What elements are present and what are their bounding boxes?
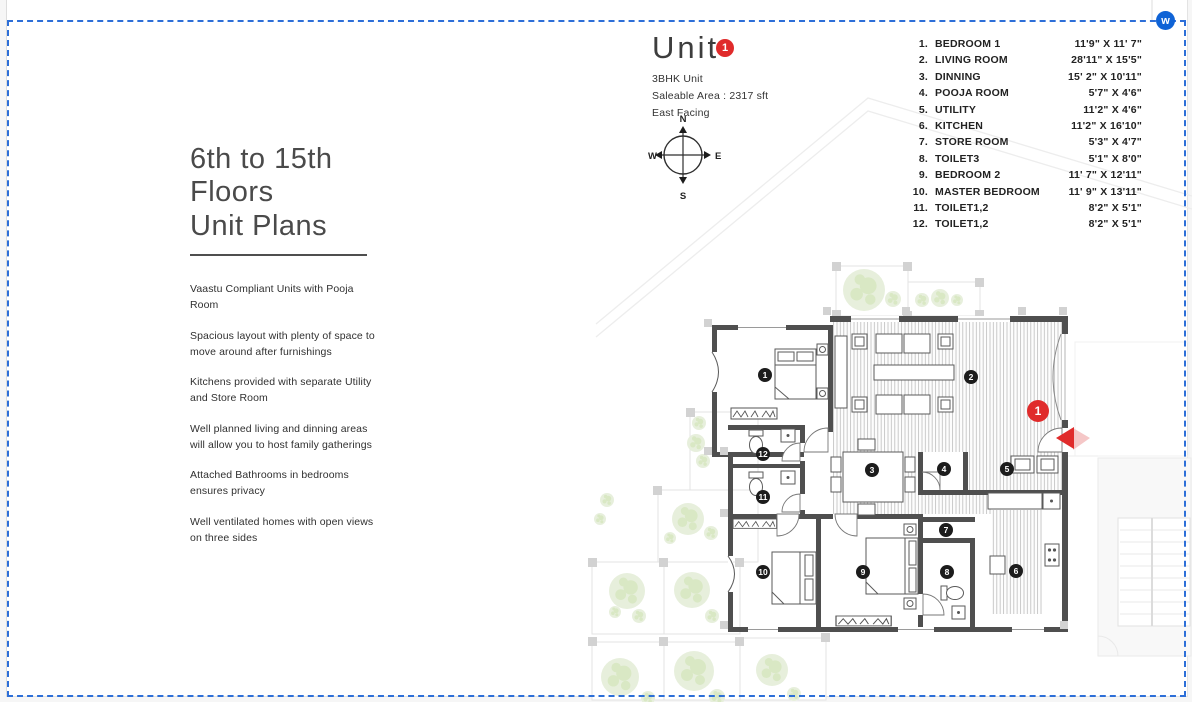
entry-unit-badge: 1 bbox=[1035, 404, 1042, 418]
compass-e-label: E bbox=[715, 151, 721, 162]
marker-master-bedroom: 10 bbox=[758, 567, 768, 577]
legend-row: 9.BEDROOM 211' 7" X 12'11" bbox=[912, 167, 1142, 183]
compass-s-label: S bbox=[680, 191, 686, 202]
legend-row: 2.LIVING ROOM28'11" X 15'5" bbox=[912, 52, 1142, 68]
unit-number-badge: 1 bbox=[716, 39, 734, 57]
legend-row: 8.TOILET35'1" X 8'0" bbox=[912, 151, 1142, 167]
feature-item: Attached Bathrooms in bedrooms ensures p… bbox=[190, 467, 376, 500]
unit-area: Saleable Area : 2317 sft bbox=[652, 88, 768, 105]
unit-type: 3BHK Unit bbox=[652, 71, 768, 88]
feature-item: Well ventilated homes with open views on… bbox=[190, 514, 376, 547]
marker-toilet3: 8 bbox=[945, 567, 950, 577]
feature-item: Vaastu Compliant Units with Pooja Room bbox=[190, 281, 376, 314]
marker-bedroom2: 9 bbox=[861, 567, 866, 577]
page-title: 6th to 15th Floors Unit Plans bbox=[190, 143, 402, 243]
marker-toilet12: 12 bbox=[758, 449, 768, 459]
page-title-line1: 6th to 15th Floors bbox=[190, 143, 402, 210]
brochure-page: 6th to 15th Floors Unit Plans Vaastu Com… bbox=[0, 0, 1192, 702]
marker-toilet11: 11 bbox=[759, 492, 768, 502]
compass-w-label: W bbox=[648, 151, 657, 162]
marker-bedroom1: 1 bbox=[763, 370, 768, 380]
feature-item: Spacious layout with plenty of space to … bbox=[190, 328, 376, 361]
title-underline bbox=[190, 254, 367, 256]
adjacent-unit-outline bbox=[1068, 342, 1191, 656]
marker-store: 7 bbox=[944, 525, 949, 535]
marker-utility: 5 bbox=[1005, 464, 1010, 474]
unit-header: Unit 1 3BHK Unit Saleable Area : 2317 sf… bbox=[652, 30, 768, 122]
compass-south-arrow bbox=[679, 177, 687, 184]
entry-arrow-shadow bbox=[1073, 428, 1090, 450]
marker-kitchen: 6 bbox=[1014, 566, 1019, 576]
legend-row: 1.BEDROOM 111'9" X 11' 7" bbox=[912, 36, 1142, 52]
unit-title: Unit bbox=[652, 30, 768, 66]
compass-n-label: N bbox=[680, 114, 687, 125]
legend-row: 12.TOILET1,28'2" X 5'1" bbox=[912, 216, 1142, 232]
legend-row: 3.DINNING15' 2" X 10'11" bbox=[912, 69, 1142, 85]
legend-row: 7.STORE ROOM5'3" X 4'7" bbox=[912, 134, 1142, 150]
legend-row: 4.POOJA ROOM5'7" X 4'6" bbox=[912, 85, 1142, 101]
legend-row: 5.UTILITY11'2" X 4'6" bbox=[912, 102, 1142, 118]
legend-row: 10.MASTER BEDROOM11' 9" X 13'11" bbox=[912, 184, 1142, 200]
feature-item: Kitchens provided with separate Utility … bbox=[190, 374, 376, 407]
marker-living: 2 bbox=[969, 372, 974, 382]
marker-dinning: 3 bbox=[870, 465, 875, 475]
feature-list: Vaastu Compliant Units with Pooja Room S… bbox=[190, 281, 376, 546]
feature-item: Well planned living and dinning areas wi… bbox=[190, 421, 376, 454]
corner-logo-icon[interactable]: w bbox=[1156, 11, 1175, 30]
legend-row: 6.KITCHEN11'2" X 16'10" bbox=[912, 118, 1142, 134]
floor-plan: 1 2 3 4 5 6 7 8 9 10 11 12 1 bbox=[586, 258, 1192, 702]
compass-east-arrow bbox=[704, 151, 711, 159]
page-title-line2: Unit Plans bbox=[190, 210, 402, 243]
compass-icon: N S W E bbox=[648, 112, 728, 204]
intro-panel: 6th to 15th Floors Unit Plans Vaastu Com… bbox=[190, 143, 402, 560]
room-legend: 1.BEDROOM 111'9" X 11' 7" 2.LIVING ROOM2… bbox=[912, 36, 1142, 233]
legend-row: 11.TOILET1,28'2" X 5'1" bbox=[912, 200, 1142, 216]
marker-pooja: 4 bbox=[942, 464, 947, 474]
compass-north-arrow bbox=[679, 126, 687, 133]
